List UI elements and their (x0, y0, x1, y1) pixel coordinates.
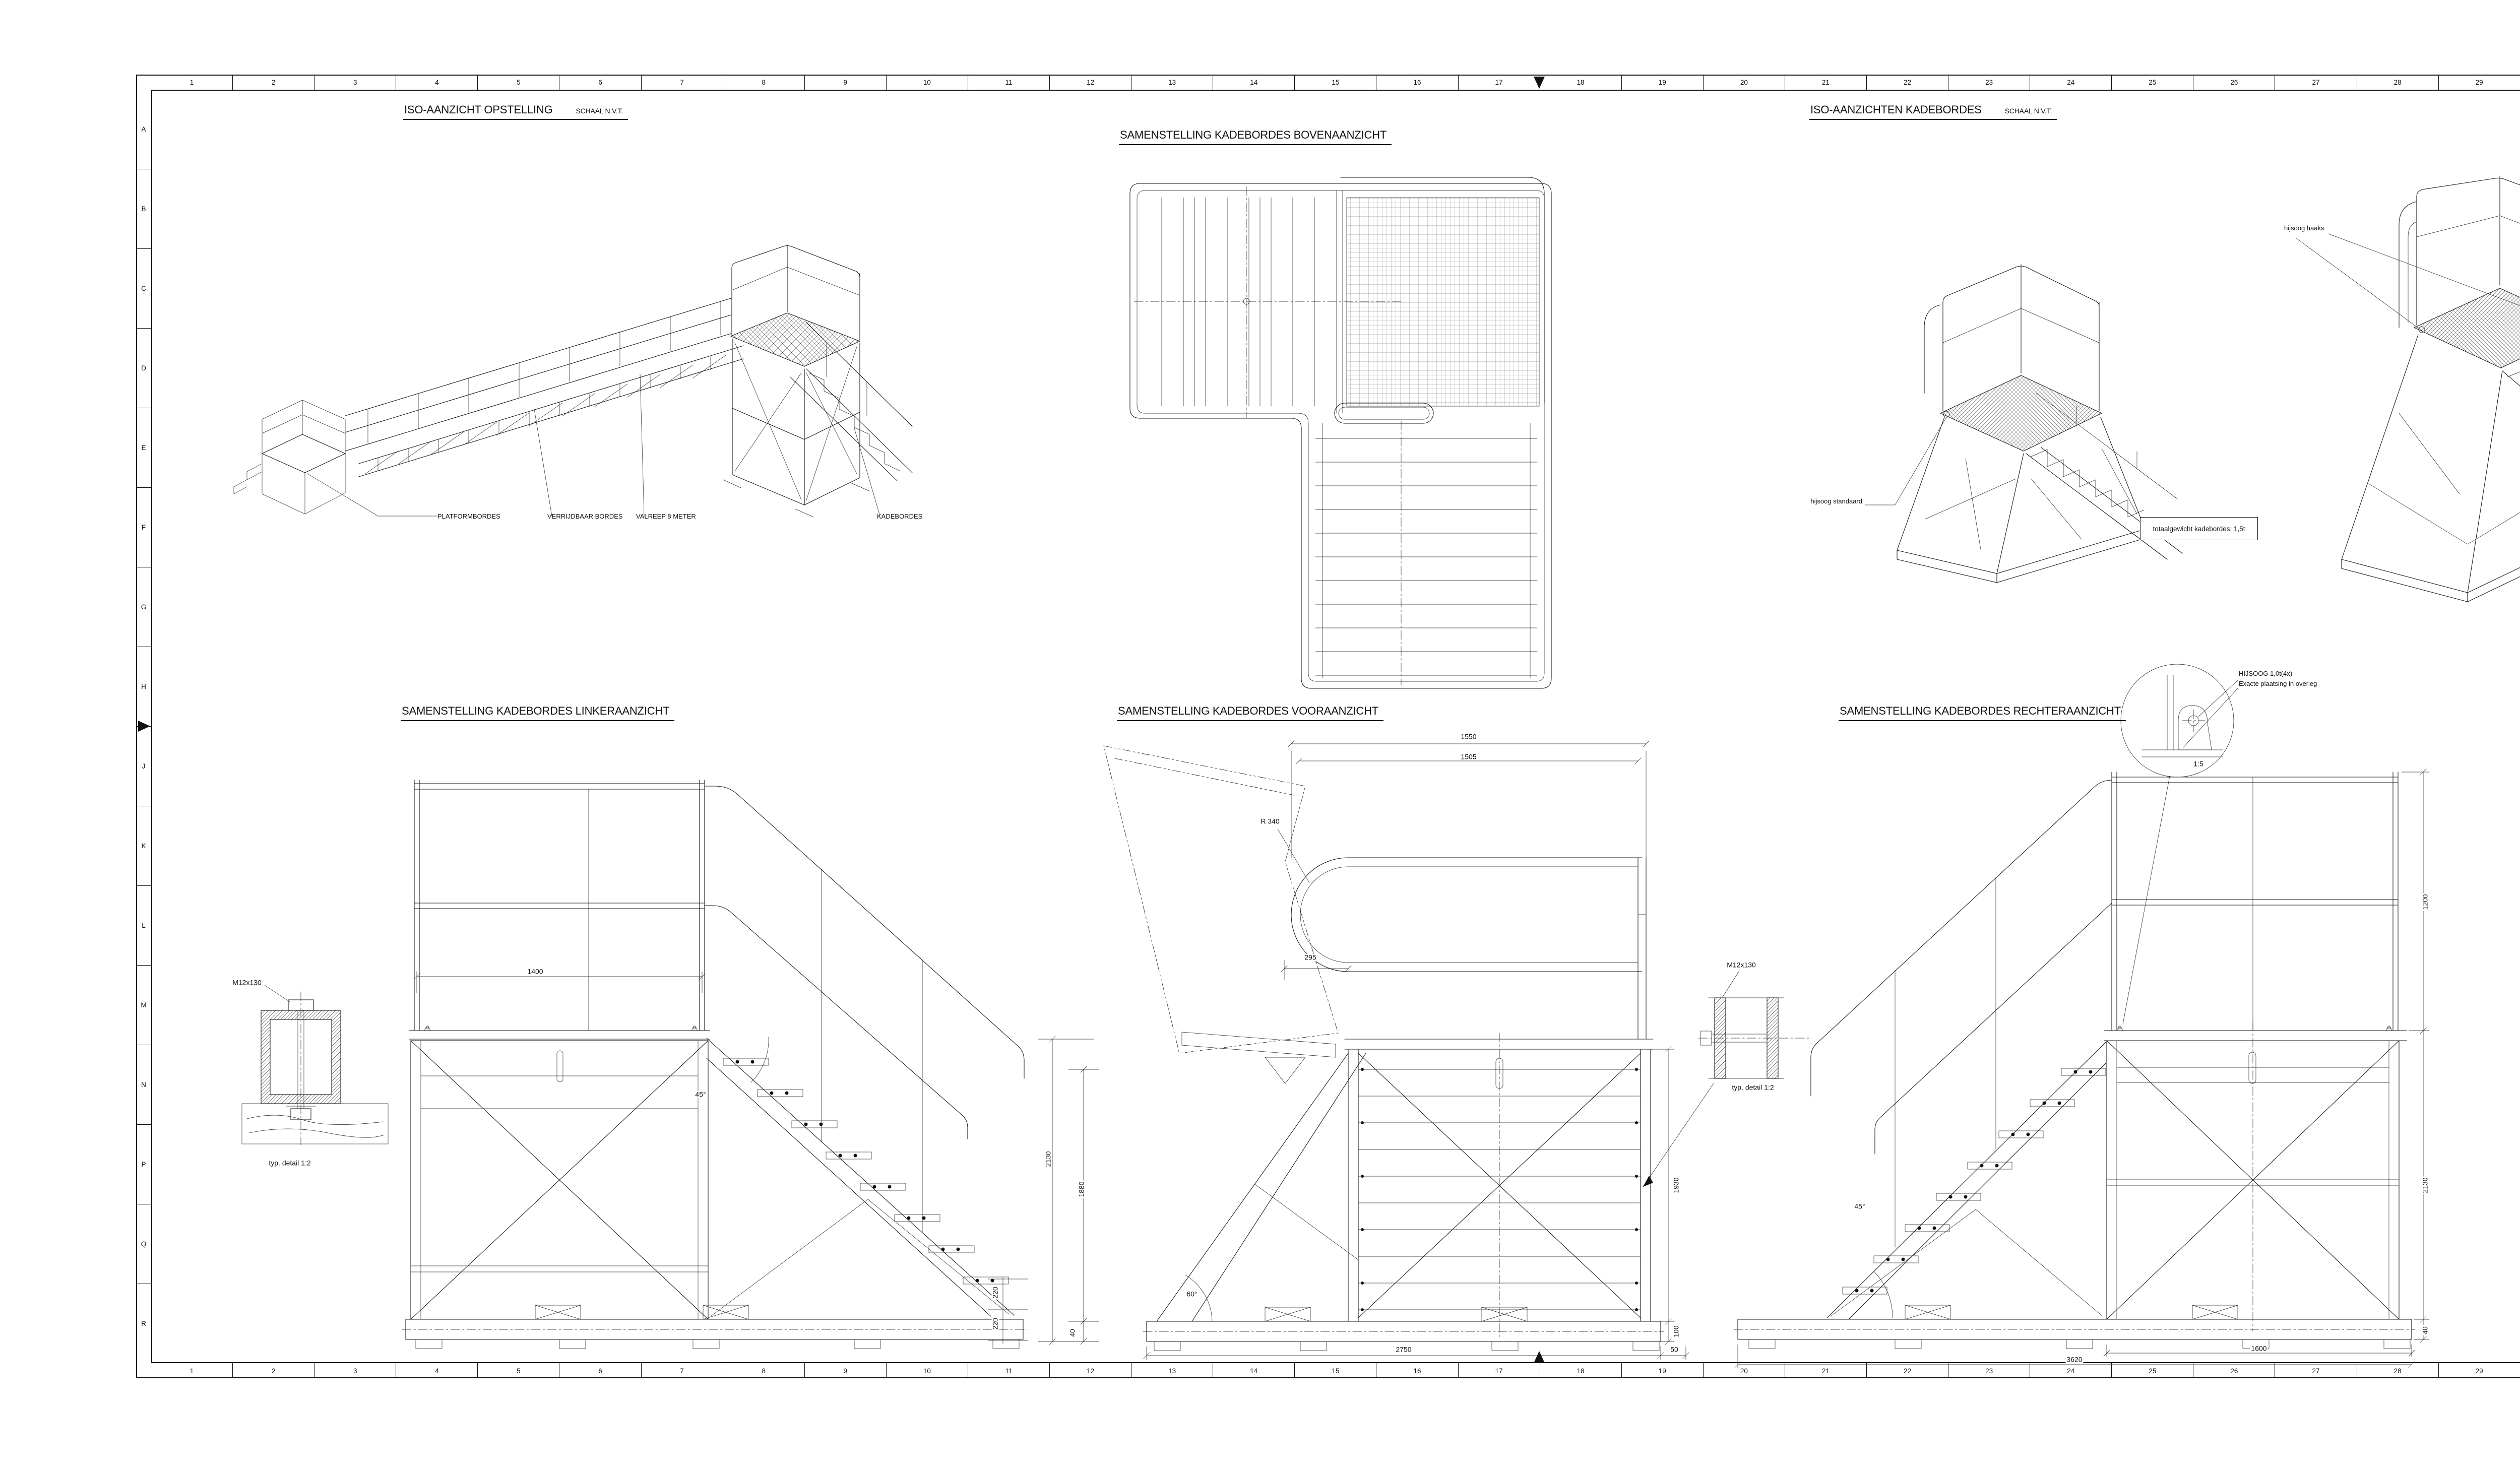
view-title: ISO-AANZICHT OPSTELLING (404, 103, 553, 116)
grid-column-label: 14 (1213, 75, 1294, 90)
dim-voor-50: 50 (1669, 1346, 1679, 1354)
note-hijsoog-line1: HIJSOOG 1,0t(4x) (2239, 669, 2292, 678)
grid-column-label: 20 (1703, 75, 1785, 90)
grid-column-label: 5 (477, 75, 559, 90)
dim-rechter-3620: 3620 (2065, 1356, 2083, 1364)
grid-row-label: B (136, 169, 151, 248)
dim-voor-60: 60° (1185, 1291, 1198, 1298)
grid-column-label: 9 (804, 1363, 886, 1378)
label-kadebordes: KADEBORDES (877, 513, 922, 520)
grid-column-label: 3 (314, 1363, 396, 1378)
title-bovenaanzicht: SAMENSTELLING KADEBORDES BOVENAANZICHT (1119, 129, 1392, 145)
grid-column-label: 17 (1458, 75, 1540, 90)
grid-column-label: 13 (1131, 75, 1213, 90)
grid-column-label: 24 (2030, 75, 2111, 90)
grid-row-label: C (136, 248, 151, 328)
dim-rechter-2130: 2130 (2422, 1176, 2429, 1194)
grid-row-label: P (136, 1124, 151, 1204)
grid-row-label: H (136, 647, 151, 726)
label-hijsoog-haaks: hijsoog haaks (2284, 225, 2324, 232)
grid-column-label: 1 (151, 1363, 232, 1378)
grid-column-label: 28 (2357, 75, 2438, 90)
dim-linker-1400: 1400 (526, 968, 544, 976)
title-linkeraanzicht: SAMENSTELLING KADEBORDES LINKERAANZICHT (401, 705, 674, 721)
title-vooraanzicht: SAMENSTELLING KADEBORDES VOORAANZICHT (1117, 705, 1383, 721)
label-linker-m12: M12x130 (231, 979, 263, 987)
title-iso-opstelling: ISO-AANZICHT OPSTELLING SCHAAL N.V.T. (403, 103, 628, 120)
dim-rechter-1600: 1600 (2250, 1345, 2267, 1353)
view-title: ISO-AANZICHTEN KADEBORDES (1810, 103, 1982, 116)
label-platformbordes: PLATFORMBORDES (437, 513, 500, 520)
dim-voor-1550: 1550 (1460, 733, 1477, 741)
dim-voor-1930: 1930 (1673, 1176, 1680, 1194)
grid-column-label: 8 (723, 1363, 804, 1378)
grid-column-label: 5 (477, 1363, 559, 1378)
dim-voor-r340: R 340 (1259, 818, 1280, 825)
title-iso-kadebordes: ISO-AANZICHTEN KADEBORDES SCHAAL N.V.T. (1809, 103, 2057, 120)
dim-rechter-40: 40 (2422, 1325, 2429, 1335)
grid-column-label: 21 (1785, 75, 1866, 90)
grid-row-label: J (136, 726, 151, 806)
dim-rechter-angle: 45° (1853, 1203, 1866, 1210)
grid-column-label: 1 (151, 75, 232, 90)
dim-voor-1880: 1880 (1078, 1180, 1086, 1198)
dim-voor-2750: 2750 (1395, 1346, 1412, 1354)
view-scale: SCHAAL N.V.T. (576, 107, 623, 115)
grid-column-label: 7 (641, 1363, 723, 1378)
grid-column-label: 11 (968, 75, 1049, 90)
iso-opstelling-drawing (227, 191, 932, 544)
grid-column-label: 29 (2438, 1363, 2520, 1378)
grid-column-label: 3 (314, 75, 396, 90)
grid-column-label: 10 (886, 75, 968, 90)
grid-row-label: F (136, 487, 151, 567)
fold-mark-top (1534, 77, 1545, 89)
view-title: SAMENSTELLING KADEBORDES LINKERAANZICHT (402, 705, 669, 718)
grid-column-label: 9 (804, 75, 886, 90)
caption-linker-detail: typ. detail 1:2 (268, 1160, 311, 1167)
grid-column-label: 6 (559, 75, 641, 90)
weight-note-box: totaalgewicht kadebordes: 1,5t (2140, 517, 2258, 540)
grid-row-label: D (136, 328, 151, 408)
grid-column-label: 15 (1294, 75, 1376, 90)
view-scale: SCHAAL N.V.T. (2005, 107, 2052, 115)
grid-column-label: 12 (1049, 75, 1131, 90)
grid-row-label: E (136, 408, 151, 487)
dim-rechter-detailscale: 1:5 (2192, 760, 2204, 768)
linkeraanzicht-drawing (227, 756, 1058, 1351)
grid-column-label: 7 (641, 75, 723, 90)
grid-column-label: 16 (1376, 75, 1458, 90)
grid-column-label: 6 (559, 1363, 641, 1378)
grid-row-label: N (136, 1045, 151, 1124)
grid-column-label: 25 (2111, 75, 2193, 90)
iso-kadebordes-a-drawing (1865, 176, 2187, 580)
label-valreep: VALREEP 8 METER (636, 513, 696, 520)
grid-row-label: M (136, 965, 151, 1045)
view-title: SAMENSTELLING KADEBORDES VOORAANZICHT (1118, 705, 1378, 718)
view-title: SAMENSTELLING KADEBORDES BOVENAANZICHT (1120, 129, 1387, 142)
grid-strip-top: 1234567891011121314151617181920212223242… (151, 75, 2520, 90)
grid-column-label: 19 (1621, 75, 1703, 90)
dim-voor-40: 40 (1069, 1328, 1077, 1338)
grid-column-label: 2 (232, 1363, 314, 1378)
label-verrijdbaar-bordes: VERRIJDBAAR BORDES (547, 513, 623, 520)
label-hijsoog-standaard: hijsoog standaard (1797, 498, 1862, 505)
dim-linker-angle: 45° (694, 1091, 707, 1099)
grid-column-label: 2 (232, 75, 314, 90)
drawing-sheet: 1234567891011121314151617181920212223242… (0, 0, 2520, 1470)
dim-voor-1505: 1505 (1460, 753, 1477, 761)
grid-column-label: 26 (2193, 75, 2275, 90)
fold-mark-left (138, 721, 150, 732)
grid-column-label: 8 (723, 75, 804, 90)
dim-rechter-1200: 1200 (2422, 893, 2429, 911)
grid-column-label: 29 (2438, 75, 2520, 90)
grid-column-label: 4 (396, 75, 477, 90)
vooraanzicht-drawing (983, 731, 1819, 1366)
grid-row-label: G (136, 567, 151, 647)
dim-voor-295: 295 (1303, 954, 1317, 962)
grid-column-label: 10 (886, 1363, 968, 1378)
weight-note: totaalgewicht kadebordes: 1,5t (2153, 525, 2245, 533)
note-hijsoog-line2: Exacte plaatsing in overleg (2239, 679, 2317, 688)
grid-column-label: 23 (1948, 75, 2030, 90)
rechteraanzicht-drawing (1714, 645, 2439, 1371)
grid-row-label: Q (136, 1204, 151, 1284)
grid-column-label: 22 (1866, 75, 1948, 90)
grid-column-label: 18 (1540, 75, 1621, 90)
grid-column-label: 4 (396, 1363, 477, 1378)
dim-voor-100: 100 (1673, 1324, 1680, 1338)
grid-row-label: R (136, 1284, 151, 1363)
dim-voor-2130: 2130 (1045, 1150, 1052, 1168)
bovenaanzicht-drawing (1119, 166, 1572, 700)
grid-row-label: A (136, 90, 151, 169)
grid-row-label: L (136, 885, 151, 965)
grid-row-label: K (136, 806, 151, 885)
grid-column-label: 27 (2275, 75, 2356, 90)
